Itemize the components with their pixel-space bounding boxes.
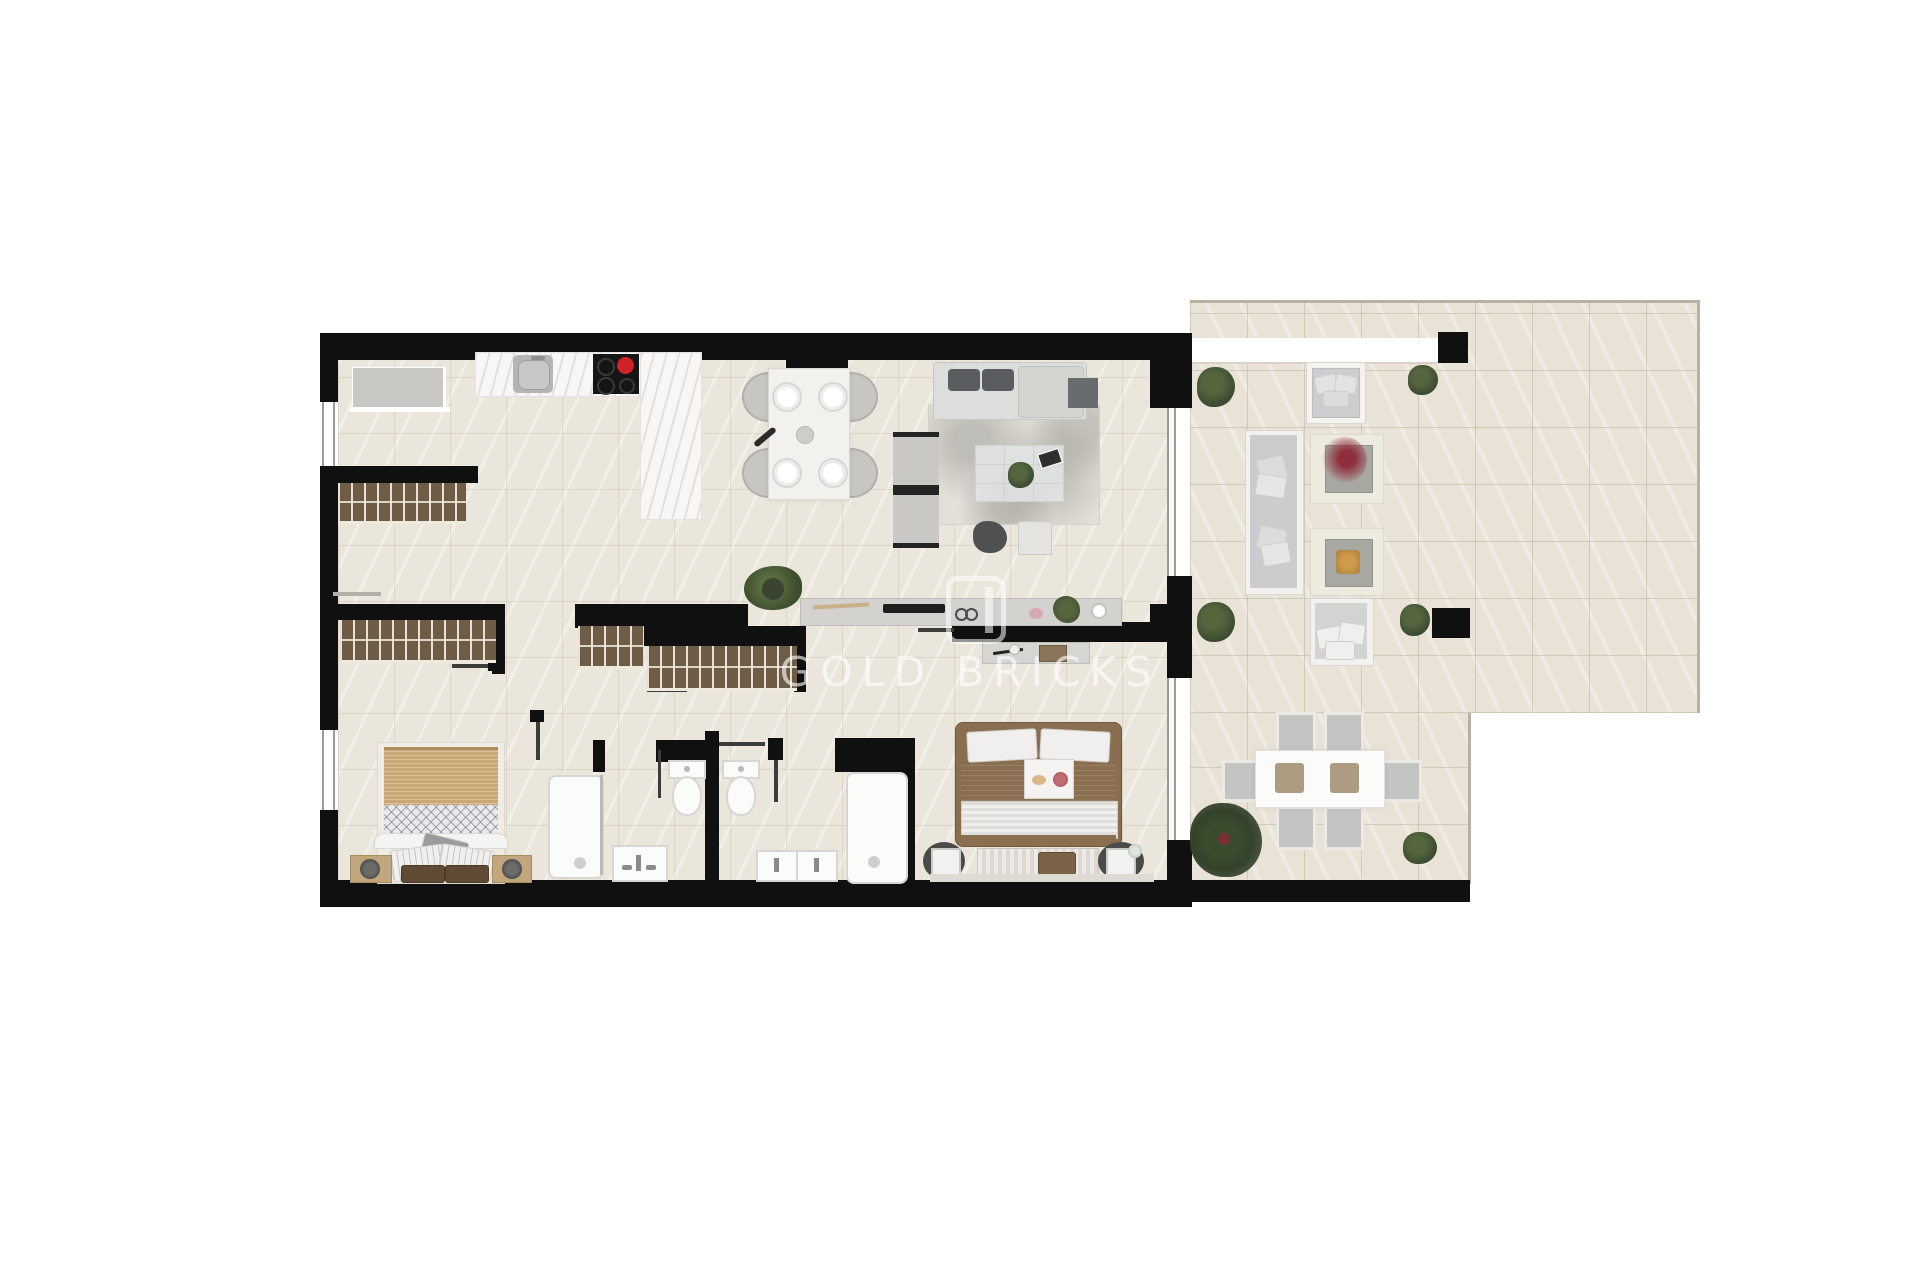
plate-br: [818, 458, 848, 488]
plate-tl: [772, 382, 802, 412]
desk-cup: [1091, 603, 1107, 619]
wall-bedroom1-top-capL: [326, 604, 338, 662]
terrace-column: [1438, 332, 1468, 363]
kitchen-island: [640, 352, 702, 520]
wall-hall-1: [575, 604, 748, 628]
floorplan-canvas: GOLD BRICKS: [0, 0, 1920, 1280]
wall-east-mid: [1167, 576, 1192, 678]
nightstand2-flowers: [1128, 844, 1142, 858]
bed2-breakfast-tray: [1024, 759, 1074, 799]
toilet2-bowl: [726, 776, 756, 816]
tray-flowers: [1053, 772, 1068, 787]
shower1-pipe: [658, 750, 661, 798]
shower2-glass: [774, 760, 778, 802]
terrace-corner-column: [1432, 608, 1470, 638]
wardrobe-bedroom1: [340, 620, 496, 663]
sofa-side-table: [1068, 378, 1098, 408]
outdoor-sofa: [1245, 430, 1304, 595]
nightstand1-right: [492, 855, 532, 883]
flower-table-mat: [1310, 434, 1384, 504]
desk-pencil-case: [883, 604, 945, 613]
burner-red: [617, 357, 634, 374]
outdoor-armchair-frame: [1306, 362, 1366, 424]
terrace-daybed: [1310, 598, 1374, 666]
terrace-edge-lower-right: [1468, 713, 1471, 884]
terrace-edge-top: [1190, 300, 1700, 303]
db-pillow-3: [1325, 641, 1355, 660]
shower1-drain: [574, 857, 586, 869]
terrace-glass-door-lower: [1167, 678, 1176, 840]
lamp1-left: [360, 859, 380, 879]
desk-plant: [1053, 596, 1080, 623]
wall-ne-block: [1150, 360, 1190, 408]
wall-bath1-north: [656, 740, 708, 762]
desk-ruler: [813, 603, 869, 610]
wall-east-bottom: [1167, 840, 1192, 882]
sofa-cushion-dark-2: [982, 369, 1014, 391]
window-left-upper: [319, 402, 338, 470]
wall-shower2-north: [835, 738, 915, 772]
wardrobe-entry: [338, 483, 466, 524]
vanity2l-faucet: [774, 858, 779, 872]
toilet1-button: [684, 766, 690, 772]
kitchen-faucet: [531, 356, 545, 360]
kitchen-sink-basin: [518, 360, 550, 390]
oa-pillow-3: [1323, 391, 1349, 407]
bed2-pillow-2: [1039, 728, 1111, 763]
vanity2-left: [756, 850, 798, 882]
placemat-2: [1330, 763, 1359, 793]
window-left-lower: [319, 730, 338, 810]
bed2-duvet: [961, 801, 1118, 839]
burner-4: [619, 378, 635, 394]
kitchen-appliance-block: [352, 367, 446, 409]
tray-croissant: [1032, 775, 1046, 785]
door-bath1-bracket: [530, 710, 544, 722]
vanity2-right: [796, 850, 838, 882]
bed1-throw-tan: [384, 747, 498, 808]
burner-3: [597, 377, 615, 395]
bed2: [955, 722, 1122, 847]
bed2-pillow-1: [966, 728, 1038, 763]
outdoor-chair-right: [1382, 760, 1422, 802]
firepit-glow: [1336, 550, 1360, 574]
outdoor-chair-bottom-1: [1276, 806, 1316, 850]
terrace-large-plant: [1190, 803, 1262, 877]
plate-tr: [818, 382, 848, 412]
gold-bricks-logo-icon: [946, 576, 1006, 644]
wall-shower1-stub: [593, 740, 605, 772]
toilet2-button: [738, 766, 744, 772]
burner-1: [597, 358, 615, 376]
firepit-table-mat: [1310, 528, 1384, 596]
wall-entry-closet: [320, 466, 478, 483]
door-bath2-leaf: [719, 742, 765, 746]
wall-bedroom1-top: [326, 604, 505, 620]
terrace-glass-door-upper: [1167, 408, 1176, 576]
vanity1-faucet: [636, 855, 641, 871]
plate-bl: [772, 458, 802, 488]
bed1: [377, 742, 505, 884]
hallway-plant-pot: [762, 578, 784, 600]
wall-bottom: [320, 880, 1192, 907]
sofa-cushion-dark-1: [948, 369, 980, 391]
vanity2r-faucet: [814, 858, 819, 872]
shower1-tray: [548, 775, 604, 879]
toilet1-bowl: [672, 776, 702, 816]
entry-shelf-line: [333, 592, 381, 596]
bed1-lumbar-2: [445, 865, 489, 883]
terrace-edge-right: [1697, 300, 1700, 713]
kitchen-cooktop: [593, 354, 639, 394]
watermark: GOLD BRICKS: [770, 648, 1170, 696]
wall-bath2-stub: [768, 738, 783, 760]
wardrobe-hall-small: [578, 626, 644, 669]
desk-washi-tape: [1029, 608, 1043, 619]
large-plant-red-tip: [1218, 833, 1230, 845]
vanity1: [612, 845, 668, 882]
hallway-plant: [744, 566, 802, 610]
living-side-table-2: [1018, 521, 1052, 555]
wall-hall-2: [644, 626, 806, 646]
bench-pillow: [1038, 852, 1076, 875]
shower2-drain: [868, 856, 880, 868]
wall-east-stub: [1150, 604, 1170, 642]
os-pillow-2: [1255, 473, 1288, 499]
lamp1-right: [502, 859, 522, 879]
shower1-glass: [600, 775, 603, 875]
kitchen-sink: [513, 355, 553, 393]
pouf: [973, 521, 1007, 553]
kitchen-counter-edge: [350, 407, 450, 412]
table-vase: [796, 426, 814, 444]
outdoor-chair-bottom-2: [1324, 806, 1364, 850]
vanity1-tap-l: [622, 865, 632, 870]
bed1-lumbar-1: [401, 865, 445, 883]
wall-top: [320, 333, 1190, 360]
nightstand1-left: [350, 855, 392, 883]
shower2-tray: [846, 772, 908, 884]
bed2-foot-band: [961, 835, 1116, 843]
bed2-rug-strip: [930, 874, 1154, 882]
armchair-1: [893, 432, 939, 490]
placemat-1: [1275, 763, 1304, 793]
armchair-2: [893, 490, 939, 548]
outdoor-dining-table: [1255, 750, 1385, 808]
wall-bottom-terrace: [1190, 880, 1470, 902]
terrace-planter-band: [1192, 338, 1438, 364]
vanity1-tap-r: [646, 865, 656, 870]
